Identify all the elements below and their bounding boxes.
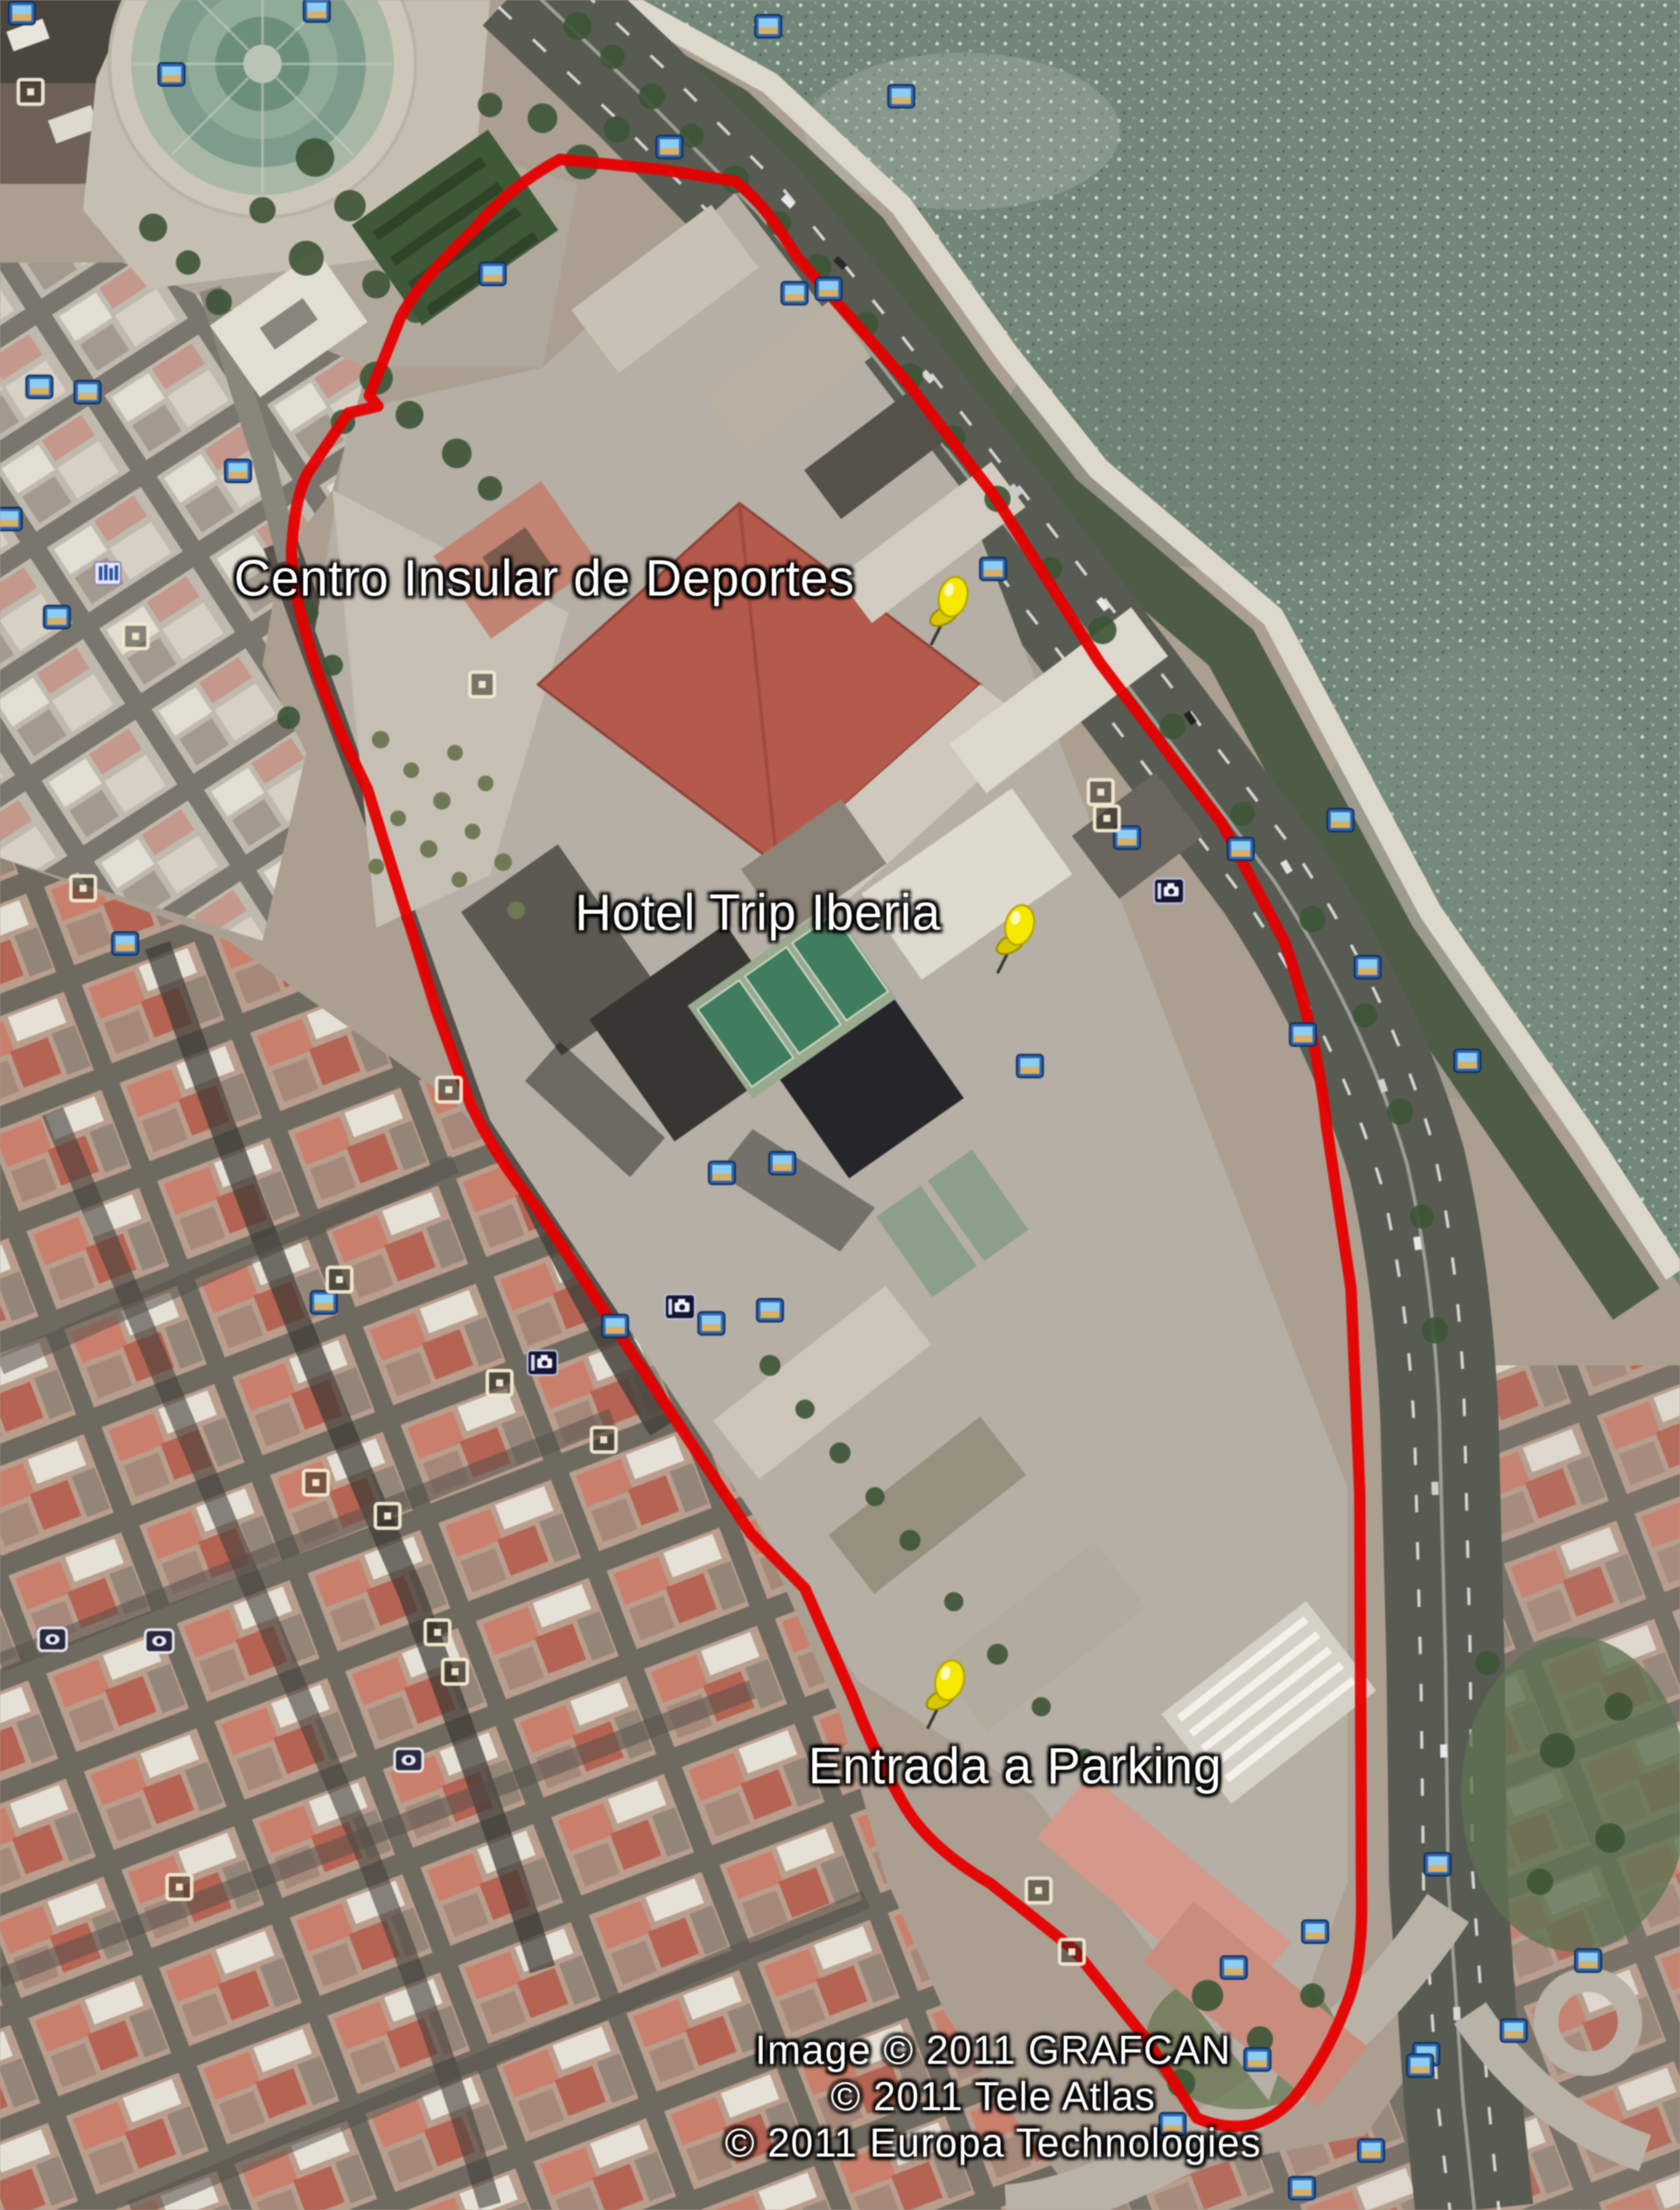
square-icon[interactable] <box>18 80 43 104</box>
photo-icon[interactable] <box>1327 809 1354 831</box>
square-icon[interactable] <box>1060 1940 1084 1964</box>
map-copyright: Image © 2011 GRAFCAN © 2011 Tele Atlas ©… <box>724 2027 1261 2166</box>
square-icon[interactable] <box>327 1267 352 1292</box>
photo-icon[interactable] <box>1290 1023 1316 1046</box>
square-icon[interactable] <box>375 1504 400 1528</box>
photo-icon[interactable] <box>1575 1949 1601 1972</box>
photo-icon[interactable] <box>74 381 101 403</box>
square-icon[interactable] <box>437 1077 461 1102</box>
eye-icon[interactable] <box>395 1749 423 1772</box>
camera-icon[interactable] <box>528 1351 557 1375</box>
copyright-line-europa-technologies: © 2011 Europa Technologies <box>724 2120 1261 2166</box>
photo-icon[interactable] <box>980 558 1006 580</box>
photo-icon[interactable] <box>815 277 842 300</box>
photo-icon[interactable] <box>44 606 70 628</box>
square-icon[interactable] <box>470 672 494 697</box>
square-icon[interactable] <box>487 1371 512 1395</box>
photo-icon[interactable] <box>1454 1049 1480 1072</box>
photo-icon[interactable] <box>755 15 781 38</box>
photo-icon[interactable] <box>781 282 808 305</box>
photo-icon[interactable] <box>709 1161 735 1184</box>
photo-icon[interactable] <box>479 263 506 285</box>
square-icon[interactable] <box>1088 780 1113 804</box>
placemark-label-hotel-trip-iberia[interactable]: Hotel Trip Iberia <box>575 884 941 943</box>
square-icon[interactable] <box>71 876 95 901</box>
square-icon[interactable] <box>443 1659 467 1684</box>
camera-icon[interactable] <box>665 1294 695 1319</box>
eye-icon[interactable] <box>145 1630 173 1652</box>
eye-icon[interactable] <box>38 1628 66 1651</box>
photo-icon[interactable] <box>1358 2139 1384 2162</box>
square-icon[interactable] <box>1026 1878 1051 1903</box>
square-icon[interactable] <box>167 1875 192 1899</box>
photo-icon[interactable] <box>1407 2054 1433 2077</box>
photo-icon[interactable] <box>225 460 251 482</box>
placemark-label-entrada-a-parking[interactable]: Entrada a Parking <box>808 1737 1222 1796</box>
square-icon[interactable] <box>591 1428 616 1452</box>
photo-icon[interactable] <box>1221 1956 1247 1979</box>
photo-icon[interactable] <box>9 2 35 25</box>
photo-icon[interactable] <box>656 136 682 158</box>
photo-icon[interactable] <box>112 932 138 955</box>
photo-icon[interactable] <box>1302 1920 1328 1943</box>
placemark-label-centro-insular-de-deportes[interactable]: Centro Insular de Deportes <box>234 550 854 608</box>
photo-icon[interactable] <box>698 1312 724 1335</box>
photo-icon[interactable] <box>1354 956 1381 979</box>
square-icon[interactable] <box>425 1620 450 1645</box>
photo-icon[interactable] <box>0 508 22 530</box>
photo-icon[interactable] <box>311 1291 337 1314</box>
camera-icon[interactable] <box>1154 879 1184 903</box>
photo-icon[interactable] <box>1424 1853 1451 1876</box>
photo-icon[interactable] <box>26 375 52 398</box>
photo-icon[interactable] <box>1501 2019 1527 2042</box>
bars-icon[interactable] <box>94 562 121 585</box>
square-icon[interactable] <box>304 1470 328 1495</box>
google-earth-satellite-view: Centro Insular de Deportes Hotel Trip Ib… <box>0 0 1680 2210</box>
copyright-line-imagery: Image © 2011 GRAFCAN <box>724 2027 1261 2073</box>
photo-icon[interactable] <box>1228 838 1254 860</box>
photo-icon[interactable] <box>757 1299 783 1322</box>
photo-icon[interactable] <box>1289 2177 1315 2199</box>
photo-icon[interactable] <box>769 1152 795 1175</box>
photo-icon[interactable] <box>602 1315 628 1337</box>
photo-icon[interactable] <box>888 85 914 108</box>
square-icon[interactable] <box>1095 806 1119 831</box>
photo-icon[interactable] <box>1017 1055 1043 1077</box>
square-icon[interactable] <box>123 624 148 649</box>
photo-icon[interactable] <box>304 0 330 22</box>
copyright-line-tele-atlas: © 2011 Tele Atlas <box>724 2073 1261 2120</box>
photo-icon[interactable] <box>158 63 185 86</box>
satellite-basemap <box>0 0 1680 2210</box>
